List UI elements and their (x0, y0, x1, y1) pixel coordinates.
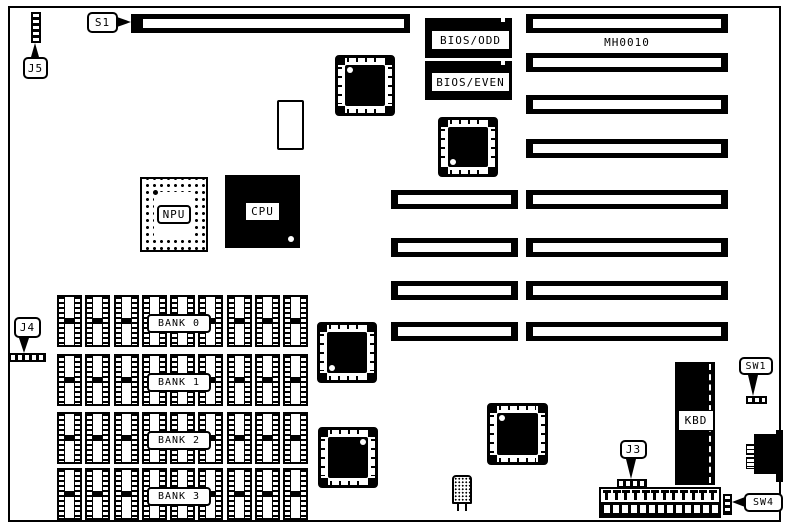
expansion-slot (526, 95, 728, 114)
chip-notch (501, 18, 505, 22)
motherboard-diagram: J5 S1 BIOS/ODD BIOS/EVEN MH0010 NPU (0, 0, 788, 532)
dip-socket (227, 468, 252, 520)
cpu-chip: CPU (225, 175, 300, 248)
power-connector-sockets (601, 502, 719, 516)
qfp-chip (318, 427, 378, 488)
j5-callout-pointer (31, 43, 39, 57)
dip-socket (57, 295, 82, 347)
sw1-callout-label: SW1 (739, 357, 773, 375)
cpu-label: CPU (246, 203, 279, 220)
dip-socket (85, 354, 110, 406)
kbd-chip: KBD (675, 362, 715, 485)
j4-callout-pointer (19, 338, 29, 353)
dip-socket (255, 412, 280, 464)
j3-callout-pointer (626, 459, 636, 479)
sw4-callout-label: SW4 (744, 493, 783, 512)
npu-socket-center: NPU (154, 192, 194, 237)
kbd-label: KBD (678, 410, 714, 431)
dip-socket (283, 295, 308, 347)
dip-socket (114, 468, 139, 520)
pin1-dot (153, 190, 158, 195)
bank-label: BANK 2 (147, 431, 211, 450)
dip-socket (227, 412, 252, 464)
bank-label: BANK 1 (147, 373, 211, 392)
expansion-slot (526, 14, 728, 33)
dip-socket (57, 468, 82, 520)
j4-pin-header (9, 353, 46, 362)
crystal-oscillator (452, 475, 472, 504)
sw1-dip-switch (746, 396, 767, 404)
npu-label: NPU (157, 205, 192, 224)
dip-socket (283, 412, 308, 464)
dip-socket (114, 295, 139, 347)
dip-socket (85, 412, 110, 464)
dip-socket (283, 468, 308, 520)
pin1-dot (288, 236, 294, 242)
expansion-slot-16bit (526, 190, 728, 209)
sw4-dip-switch (723, 494, 732, 515)
j4-callout-label: J4 (14, 317, 41, 338)
dip-socket (227, 295, 252, 347)
dip-socket (114, 354, 139, 406)
sw1-callout-pointer (748, 375, 758, 396)
dip-socket (227, 354, 252, 406)
j3-callout-label: J3 (620, 440, 647, 459)
power-connector (599, 487, 721, 518)
expansion-slot-8bit (391, 322, 518, 341)
qfp-chip (487, 403, 548, 465)
qfp-chip (438, 117, 498, 177)
npu-socket: NPU (140, 177, 208, 252)
expansion-slot-8bit (391, 238, 518, 257)
j5-callout-label: J5 (23, 57, 48, 79)
power-connector-pins (603, 489, 717, 502)
dip-socket (255, 354, 280, 406)
expansion-slot (526, 139, 728, 158)
dip-socket (255, 295, 280, 347)
crystal-leg (457, 503, 459, 511)
board-model-label: MH0010 (595, 36, 659, 49)
dip-socket (57, 412, 82, 464)
expansion-slot-16bit (526, 281, 728, 300)
bios-odd-chip: BIOS/ODD (425, 18, 512, 58)
dip-socket (85, 468, 110, 520)
keyboard-connector (754, 434, 777, 474)
crystal-leg (465, 503, 467, 511)
s1-slot (131, 14, 410, 33)
small-ic (277, 100, 304, 150)
expansion-slot-16bit (526, 322, 728, 341)
expansion-slot-8bit (391, 281, 518, 300)
bios-even-label: BIOS/EVEN (430, 71, 511, 93)
dip-socket (255, 468, 280, 520)
bank-label: BANK 0 (147, 314, 211, 333)
qfp-chip (317, 322, 377, 383)
dip-socket (114, 412, 139, 464)
expansion-slot-16bit (526, 238, 728, 257)
keyboard-connector-edge (776, 430, 783, 482)
bios-even-chip: BIOS/EVEN (425, 61, 512, 100)
dip-socket (85, 295, 110, 347)
s1-callout-pointer (117, 17, 131, 27)
expansion-slot-8bit (391, 190, 518, 209)
bank-label: BANK 3 (147, 487, 211, 506)
qfp-chip (335, 55, 395, 116)
j5-pin-header (31, 12, 41, 43)
s1-callout-label: S1 (87, 12, 118, 33)
dip-socket (283, 354, 308, 406)
dip-socket (57, 354, 82, 406)
bios-odd-label: BIOS/ODD (430, 29, 511, 51)
expansion-slot (526, 53, 728, 72)
chip-notch (501, 61, 505, 65)
